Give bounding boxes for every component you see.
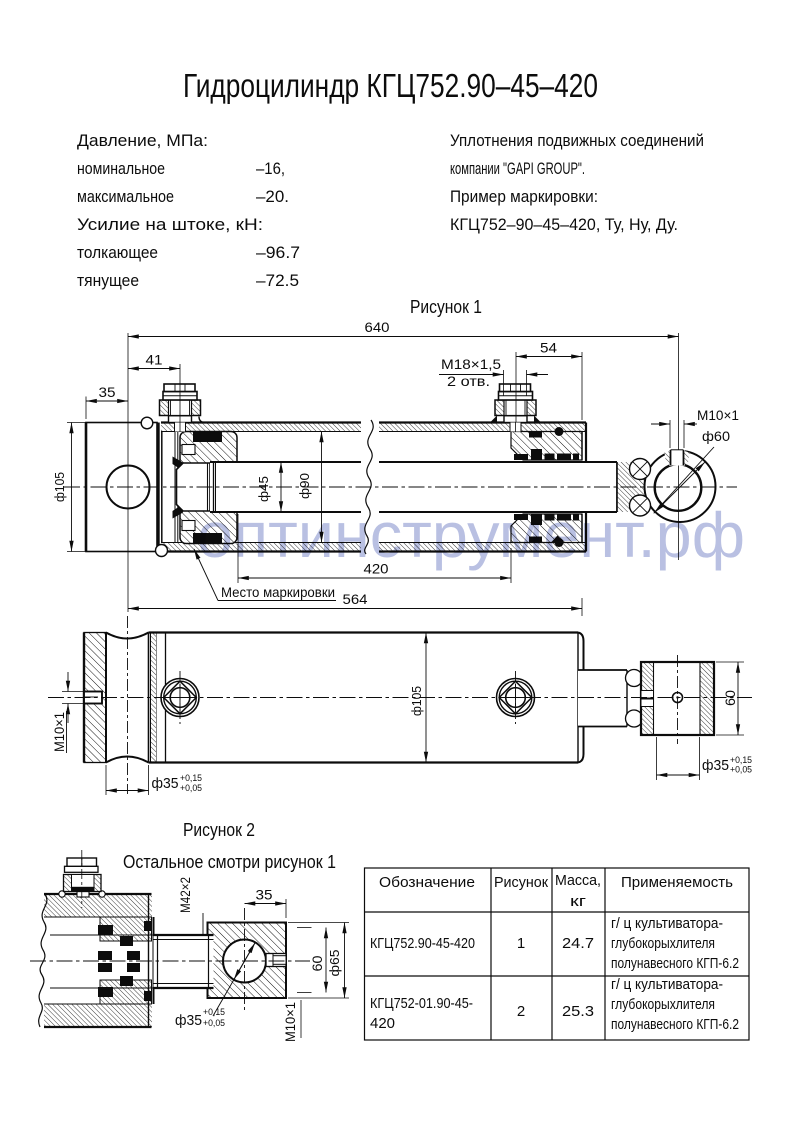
svg-text:Рисунок 2: Рисунок 2 [183,820,255,840]
svg-text:24.7: 24.7 [562,935,594,952]
svg-text:ф105: ф105 [409,686,424,716]
svg-text:420: 420 [370,1015,395,1032]
svg-text:+0,05: +0,05 [180,783,202,794]
svg-text:г/ ц культиватора-: г/ ц культиватора- [611,915,723,932]
svg-text:54: 54 [540,340,557,356]
svg-text:2: 2 [517,1003,525,1020]
svg-text:М10×1: М10×1 [283,1002,298,1042]
svg-text:564: 564 [343,591,368,607]
svg-text:компании "GAPI GROUP".: компании "GAPI GROUP". [450,159,585,178]
svg-text:Пример маркировки:: Пример маркировки: [450,187,598,206]
svg-text:КГЦ752.90-45-420: КГЦ752.90-45-420 [370,935,475,952]
svg-text:35: 35 [99,384,116,400]
svg-text:Гидроцилиндр КГЦ752.90–45–420: Гидроцилиндр КГЦ752.90–45–420 [183,67,598,104]
svg-text:2 отв.: 2 отв. [447,373,490,389]
svg-text:глубокорыхлителя: глубокорыхлителя [611,935,715,952]
svg-text:–72.5: –72.5 [256,271,299,290]
svg-text:М10×1: М10×1 [52,712,67,752]
svg-text:640: 640 [365,319,390,335]
svg-text:ф60: ф60 [702,428,730,444]
svg-text:М42×2: М42×2 [178,877,193,913]
svg-text:Масса,: Масса, [555,872,601,889]
svg-text:25.3: 25.3 [562,1003,594,1020]
svg-text:Применяемость: Применяемость [621,874,733,891]
svg-text:60: 60 [309,955,325,971]
svg-text:г/ ц культиватора-: г/ ц культиватора- [611,976,723,993]
svg-text:ф65: ф65 [327,950,342,977]
svg-text:Рисунок: Рисунок [494,874,548,891]
svg-text:+0,15: +0,15 [203,1007,225,1018]
svg-text:КГЦ752–90–45–420, Ту, Ну, Ду.: КГЦ752–90–45–420, Ту, Ну, Ду. [450,215,678,234]
svg-text:глубокорыхлителя: глубокорыхлителя [611,996,715,1013]
svg-text:Давление, МПа:: Давление, МПа: [77,131,208,150]
svg-text:Место маркировки: Место маркировки [221,584,335,600]
svg-text:ф35: ф35 [152,775,179,792]
svg-text:номинальное: номинальное [77,159,165,178]
svg-text:М10×1: М10×1 [697,408,739,423]
svg-text:1: 1 [517,935,525,952]
svg-text:ф35: ф35 [702,757,729,774]
svg-text:ф35: ф35 [175,1012,202,1029]
svg-text:кг: кг [570,893,587,910]
svg-text:Остальное смотри рисунок 1: Остальное смотри рисунок 1 [123,852,336,872]
svg-text:М18×1,5: М18×1,5 [441,356,501,372]
svg-text:–96.7: –96.7 [256,243,300,262]
svg-text:41: 41 [146,352,163,368]
svg-text:полунавесного КГП-6.2: полунавесного КГП-6.2 [611,1016,739,1033]
svg-text:Обозначение: Обозначение [379,874,475,891]
svg-text:–16,: –16, [256,159,285,178]
svg-text:Усилие на штоке, кН:: Усилие на штоке, кН: [77,215,263,234]
svg-text:+0,05: +0,05 [203,1018,225,1029]
svg-text:Рисунок 1: Рисунок 1 [410,297,482,317]
svg-text:полунавесного КГП-6.2: полунавесного КГП-6.2 [611,955,739,972]
svg-text:–20.: –20. [256,187,289,206]
svg-text:оптинструмент.рф: оптинструмент.рф [197,499,745,571]
svg-text:+0,05: +0,05 [730,765,752,776]
svg-text:ф90: ф90 [297,473,312,499]
svg-text:КГЦ752-01.90-45-: КГЦ752-01.90-45- [370,995,473,1012]
svg-text:тянущее: тянущее [77,271,139,290]
svg-text:Уплотнения подвижных соединени: Уплотнения подвижных соединений [450,131,704,150]
svg-text:35: 35 [256,887,273,903]
svg-text:толкающее: толкающее [77,243,158,262]
svg-text:максимальное: максимальное [77,187,174,206]
